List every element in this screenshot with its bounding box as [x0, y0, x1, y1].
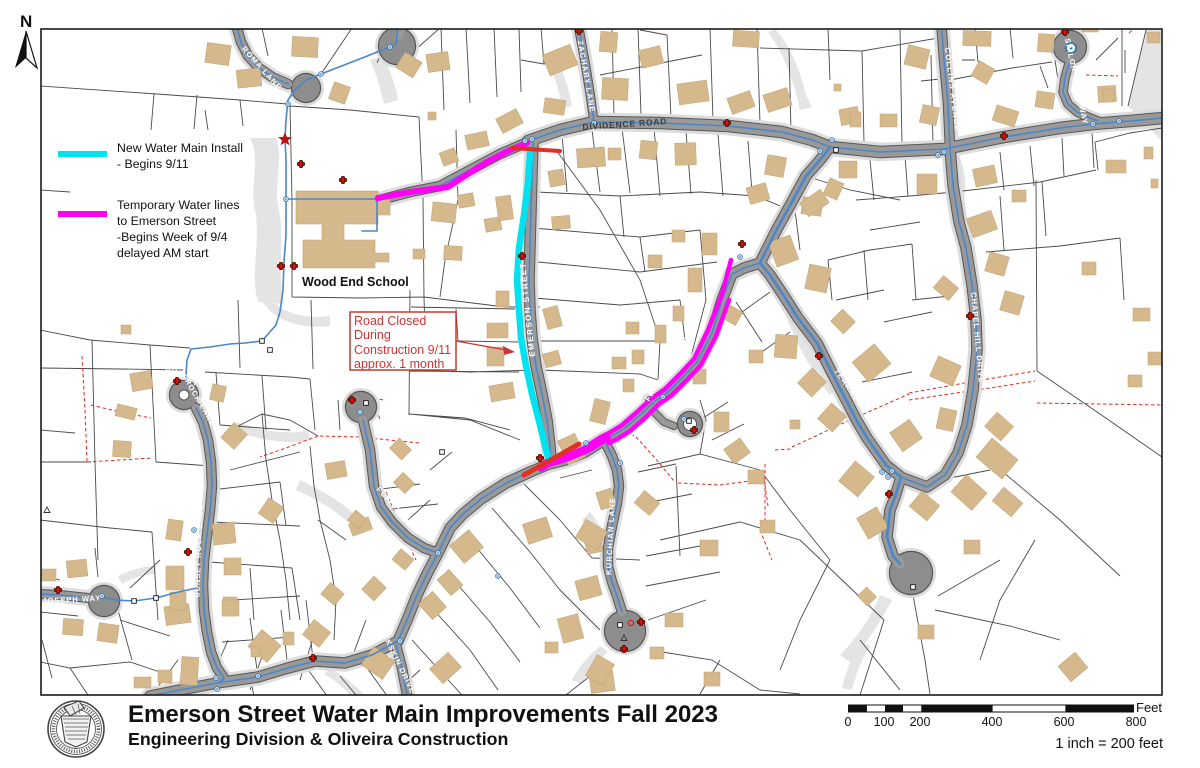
- svg-text:Road Closed: Road Closed: [354, 314, 426, 328]
- svg-text:Temporary Water lines: Temporary Water lines: [117, 198, 240, 212]
- svg-text:Wood End School: Wood End School: [302, 275, 409, 289]
- svg-text:400: 400: [982, 715, 1003, 729]
- svg-text:During: During: [354, 328, 391, 342]
- svg-text:Emerson Street Water Main Impr: Emerson Street Water Main Improvements F…: [128, 701, 718, 728]
- svg-text:600: 600: [1054, 715, 1075, 729]
- svg-text:- Begins 9/11: - Begins 9/11: [117, 157, 189, 171]
- svg-text:Engineering Division & Oliveir: Engineering Division & Oliveira Construc…: [128, 729, 508, 749]
- svg-text:to Emerson Street: to Emerson Street: [117, 214, 217, 228]
- svg-text:New Water Main Install: New Water Main Install: [117, 141, 243, 155]
- svg-text:0: 0: [845, 715, 852, 729]
- svg-text:delayed AM start: delayed AM start: [117, 246, 209, 260]
- svg-text:1 inch = 200 feet: 1 inch = 200 feet: [1055, 736, 1163, 752]
- svg-text:800: 800: [1126, 715, 1147, 729]
- svg-text:approx. 1 month: approx. 1 month: [354, 357, 444, 371]
- svg-text:100: 100: [874, 715, 895, 729]
- svg-text:N: N: [20, 12, 32, 31]
- svg-text:Construction 9/11: Construction 9/11: [354, 343, 451, 357]
- svg-text:200: 200: [910, 715, 931, 729]
- svg-text:-Begins Week of 9/4: -Begins Week of 9/4: [117, 230, 228, 244]
- svg-text:Feet: Feet: [1136, 700, 1162, 715]
